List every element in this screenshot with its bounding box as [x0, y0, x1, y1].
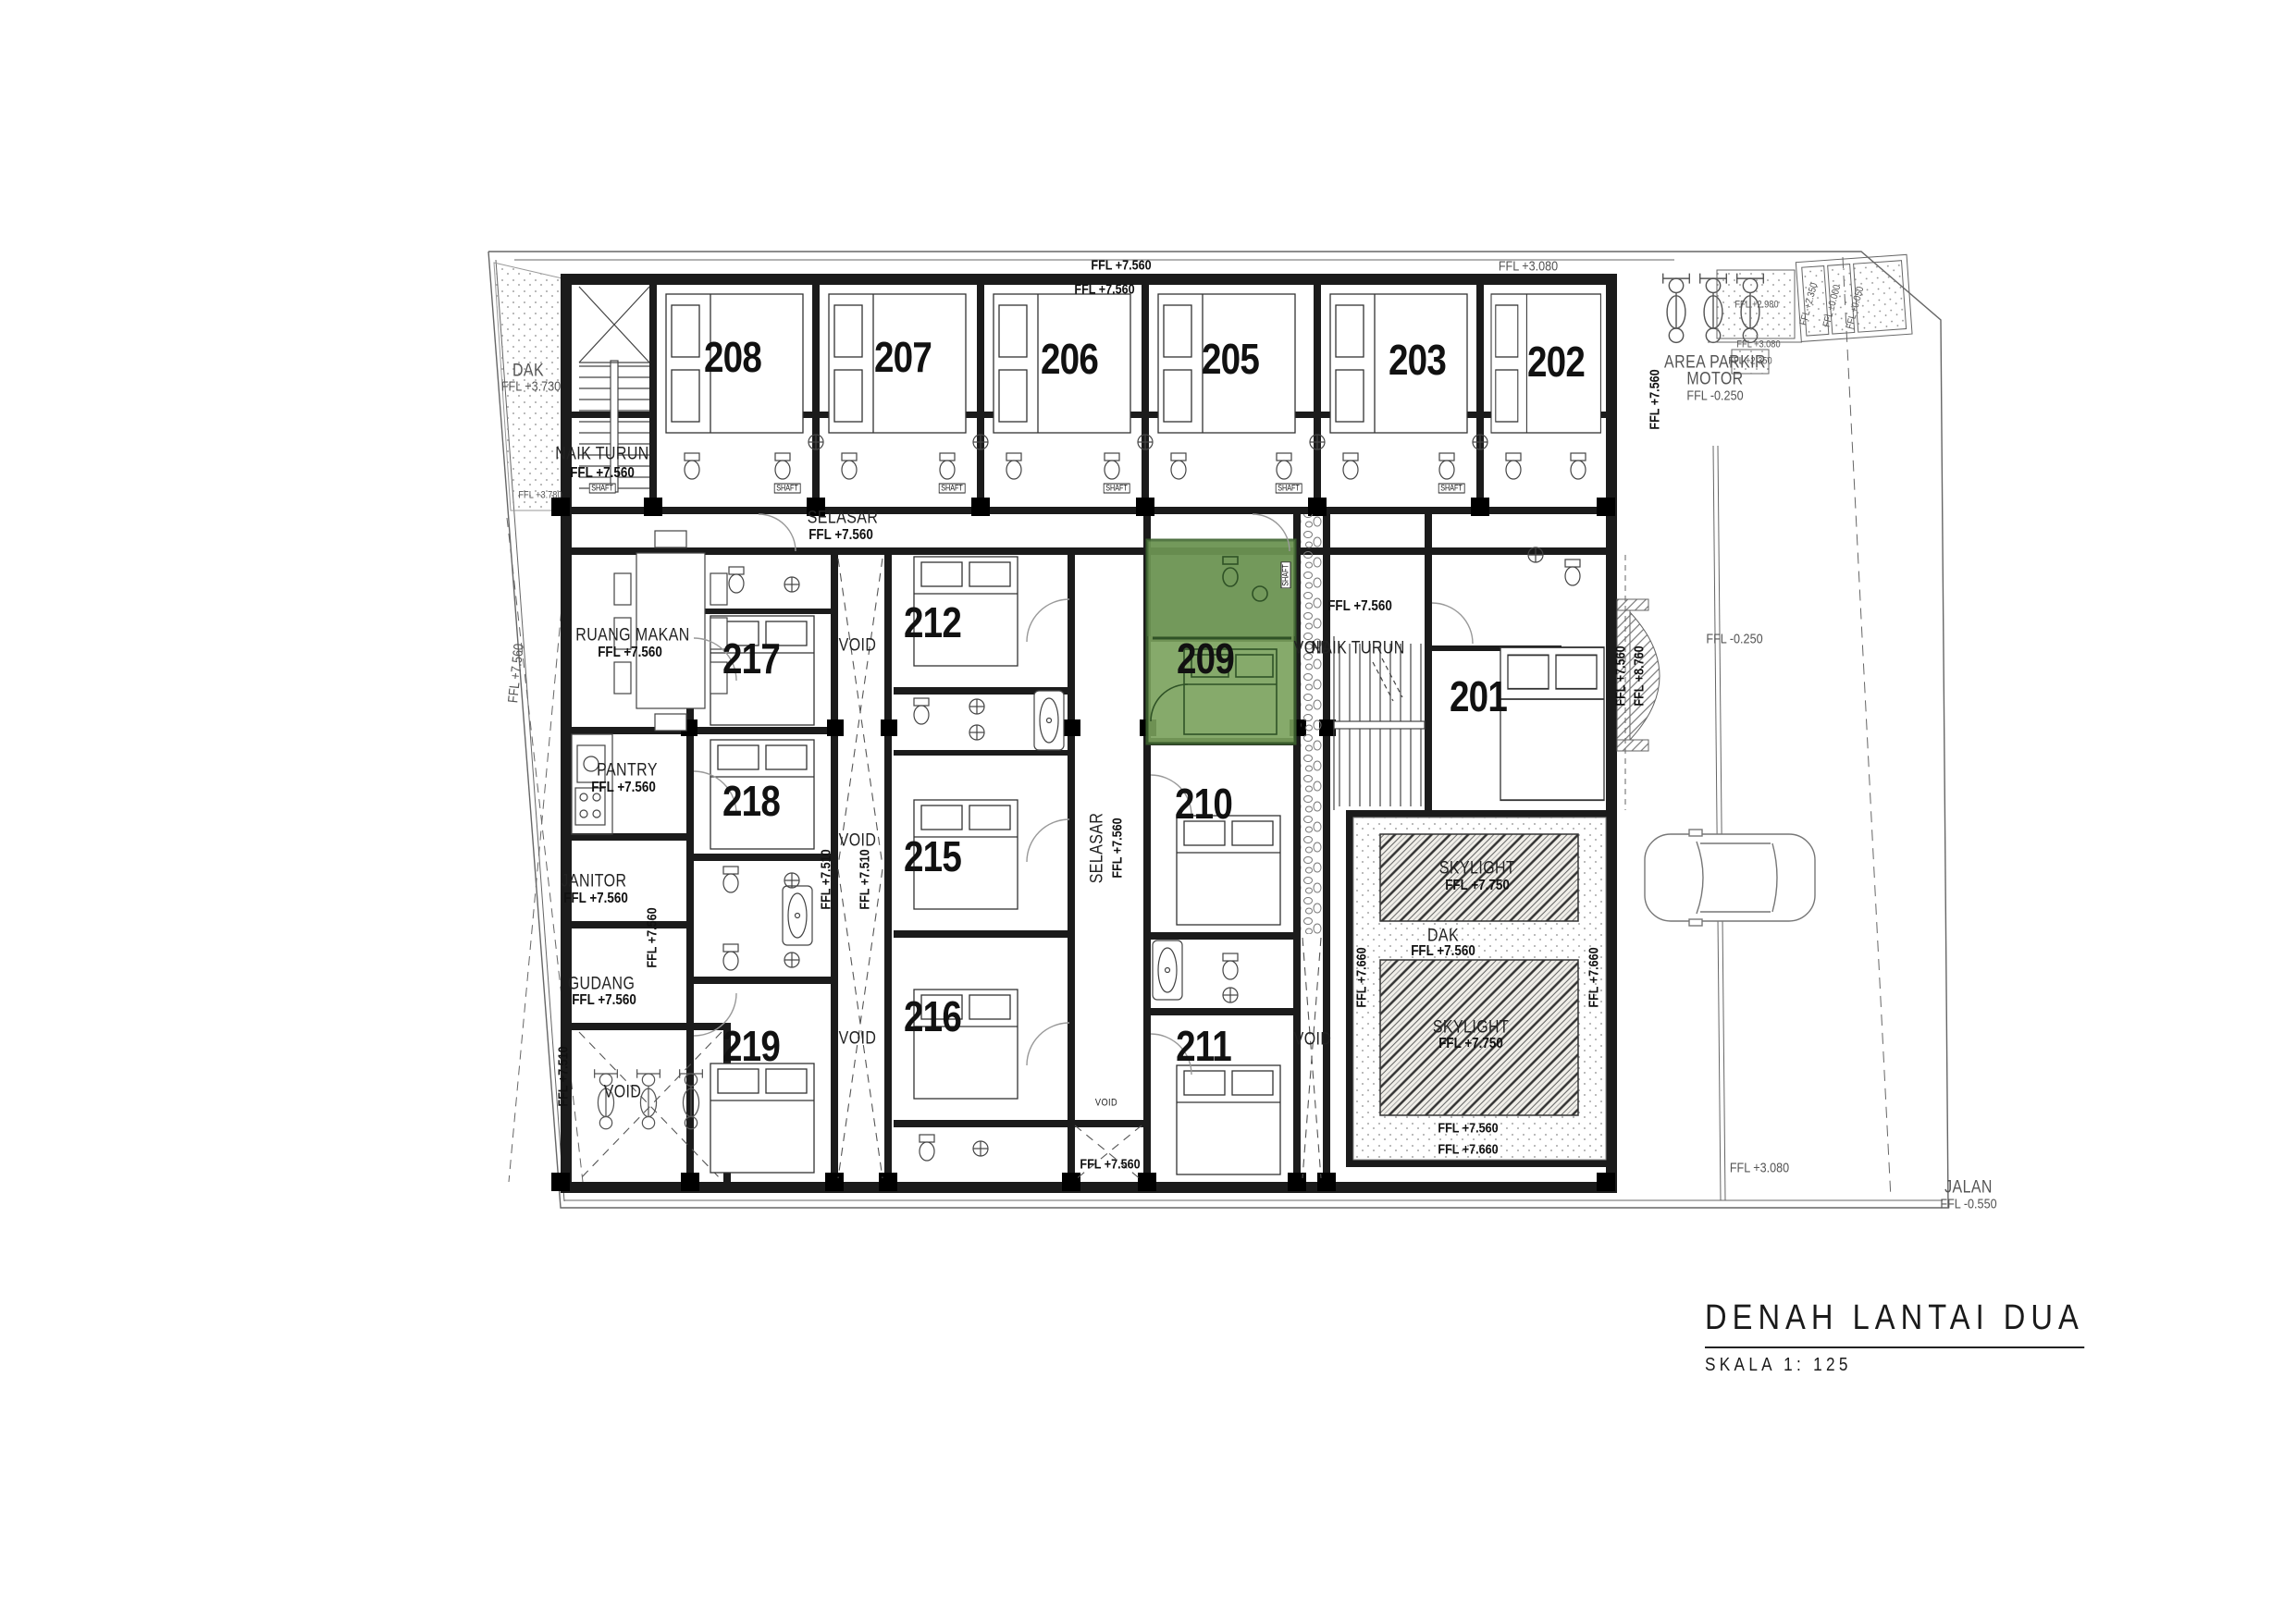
ffl-dak-small: FFL +3.780 — [518, 491, 562, 501]
room-label-202: 202 — [1527, 340, 1585, 383]
room-label-210: 210 — [1175, 782, 1232, 825]
ffl-right-wall-top: FFL +7.560 — [1648, 369, 1662, 429]
jalan-level: FFL -0.550 — [1940, 1198, 1996, 1211]
ffl-bottom-left: FFL +7.510 — [557, 1046, 571, 1106]
void-label-4: VOID — [839, 1030, 877, 1048]
ffl-bottom-right: FFL +3.080 — [1730, 1162, 1789, 1175]
ffl-court-bottom-2: FFL +7.660 — [1438, 1143, 1498, 1157]
area-parkir-level: FFL -0.250 — [1686, 389, 1743, 403]
room-label-205: 205 — [1202, 338, 1259, 380]
ffl-left-corridor: FFL +7.560 — [646, 907, 660, 967]
janitor-label: JANITOR — [562, 873, 627, 891]
area-parkir-label-2: MOTOR — [1686, 371, 1743, 388]
skylight-1-label: SKYLIGHT — [1439, 860, 1515, 878]
shaft-tag-5: SHAFT — [1276, 484, 1302, 494]
selasar-label: SELASAR — [808, 510, 879, 527]
void-label-3: VOID — [839, 832, 877, 850]
drawing-sheet: 208 207 206 205 203 202 217 218 219 212 … — [0, 0, 2296, 1623]
ffl-bottom-edge: FFL +7.560 — [1080, 1158, 1140, 1172]
ffl-top-right: FFL +3.080 — [1499, 260, 1558, 274]
pantry-label: PANTRY — [597, 762, 658, 780]
room-label-218: 218 — [722, 780, 780, 822]
title-block: DENAH LANTAI DUA SKALA 1: 125 — [1705, 1298, 2146, 1376]
drive-level: FFL -0.250 — [1706, 633, 1762, 646]
page-title: DENAH LANTAI DUA — [1705, 1298, 2084, 1348]
shaft-tag-6: SHAFT — [1438, 484, 1464, 494]
ffl-void-strip-2: FFL +7.510 — [858, 849, 872, 909]
ffl-park-2: FFL +3.080 — [1736, 340, 1780, 350]
shaft-tag-3: SHAFT — [939, 484, 965, 494]
ffl-park-1: FFL +2.980 — [1734, 301, 1778, 311]
naik-turun-left-level: FFL +7.560 — [570, 466, 635, 481]
gudang-level: FFL +7.560 — [572, 993, 636, 1008]
void-label-6: VOID — [1294, 640, 1332, 658]
ffl-court-right: FFL +7.660 — [1587, 947, 1601, 1007]
dak-left-label: DAK — [512, 363, 544, 380]
room-label-211: 211 — [1176, 1025, 1231, 1067]
ruang-makan-label: RUANG MAKAN — [575, 627, 689, 645]
skylight-1-level: FFL +7.750 — [1445, 879, 1510, 893]
dak-left-level: FFL +3.730 — [501, 380, 561, 394]
room-label-217: 217 — [722, 637, 780, 680]
skylight-2-level: FFL +7.750 — [1438, 1037, 1503, 1051]
dak-court-level: FFL +7.560 — [1411, 944, 1475, 959]
shaft-tag-2: SHAFT — [774, 484, 800, 494]
stairs-right — [1334, 636, 1425, 810]
jalan-label: JALAN — [1944, 1179, 1993, 1197]
floor-plan-drawing — [0, 0, 2296, 1623]
room-label-206: 206 — [1041, 338, 1098, 380]
ffl-top-2: FFL +7.560 — [1074, 283, 1134, 297]
janitor-level: FFL +7.560 — [563, 891, 628, 906]
dak-court-label: DAK — [1427, 928, 1459, 945]
ffl-canopy: FFL +8.760 — [1633, 646, 1647, 706]
ffl-right-wall-mid: FFL +7.560 — [1614, 646, 1628, 706]
room-label-215: 215 — [904, 835, 961, 878]
void-label-2: VOID — [839, 637, 877, 655]
ffl-park-3: FFL +2.350 — [1728, 357, 1771, 367]
room-label-201: 201 — [1450, 675, 1507, 718]
ruang-makan-level: FFL +7.560 — [598, 646, 662, 660]
ffl-court-left: FFL +7.660 — [1355, 947, 1369, 1007]
page-scale: SKALA 1: 125 — [1705, 1355, 2084, 1376]
room-label-216: 216 — [904, 995, 961, 1038]
shaft-tag-7: SHAFT — [1281, 562, 1291, 588]
ffl-void-strip-1: FFL +7.510 — [820, 849, 833, 909]
naik-turun-left-label: NAIK TURUN — [555, 446, 648, 463]
void-cobble-strip — [1301, 514, 1323, 934]
void-label-1: VOID — [604, 1084, 642, 1101]
car — [1645, 830, 1815, 926]
room-label-203: 203 — [1389, 338, 1446, 381]
room-label-212: 212 — [904, 601, 961, 644]
selasar-vertical-level: FFL +7.560 — [1111, 818, 1125, 878]
room-label-207: 207 — [874, 336, 932, 378]
skylight-2-label: SKYLIGHT — [1433, 1019, 1509, 1037]
ffl-court-bottom-1: FFL +7.560 — [1438, 1122, 1498, 1136]
void-label-5: VOID — [1095, 1099, 1117, 1109]
room-label-208: 208 — [704, 336, 761, 378]
ffl-top-1: FFL +7.560 — [1091, 259, 1151, 273]
room-label-219: 219 — [722, 1025, 780, 1067]
void-label-7: VOID — [1294, 1031, 1332, 1049]
shaft-tag-1: SHAFT — [589, 484, 615, 494]
gudang-label: GUDANG — [568, 976, 636, 993]
selasar-level: FFL +7.560 — [809, 528, 873, 543]
room-label-209: 209 — [1177, 637, 1234, 680]
naik-turun-right-level: FFL +7.560 — [1327, 599, 1392, 614]
shaft-tag-4: SHAFT — [1104, 484, 1129, 494]
pantry-level: FFL +7.560 — [591, 781, 656, 795]
selasar-vertical-label: SELASAR — [1089, 813, 1106, 884]
